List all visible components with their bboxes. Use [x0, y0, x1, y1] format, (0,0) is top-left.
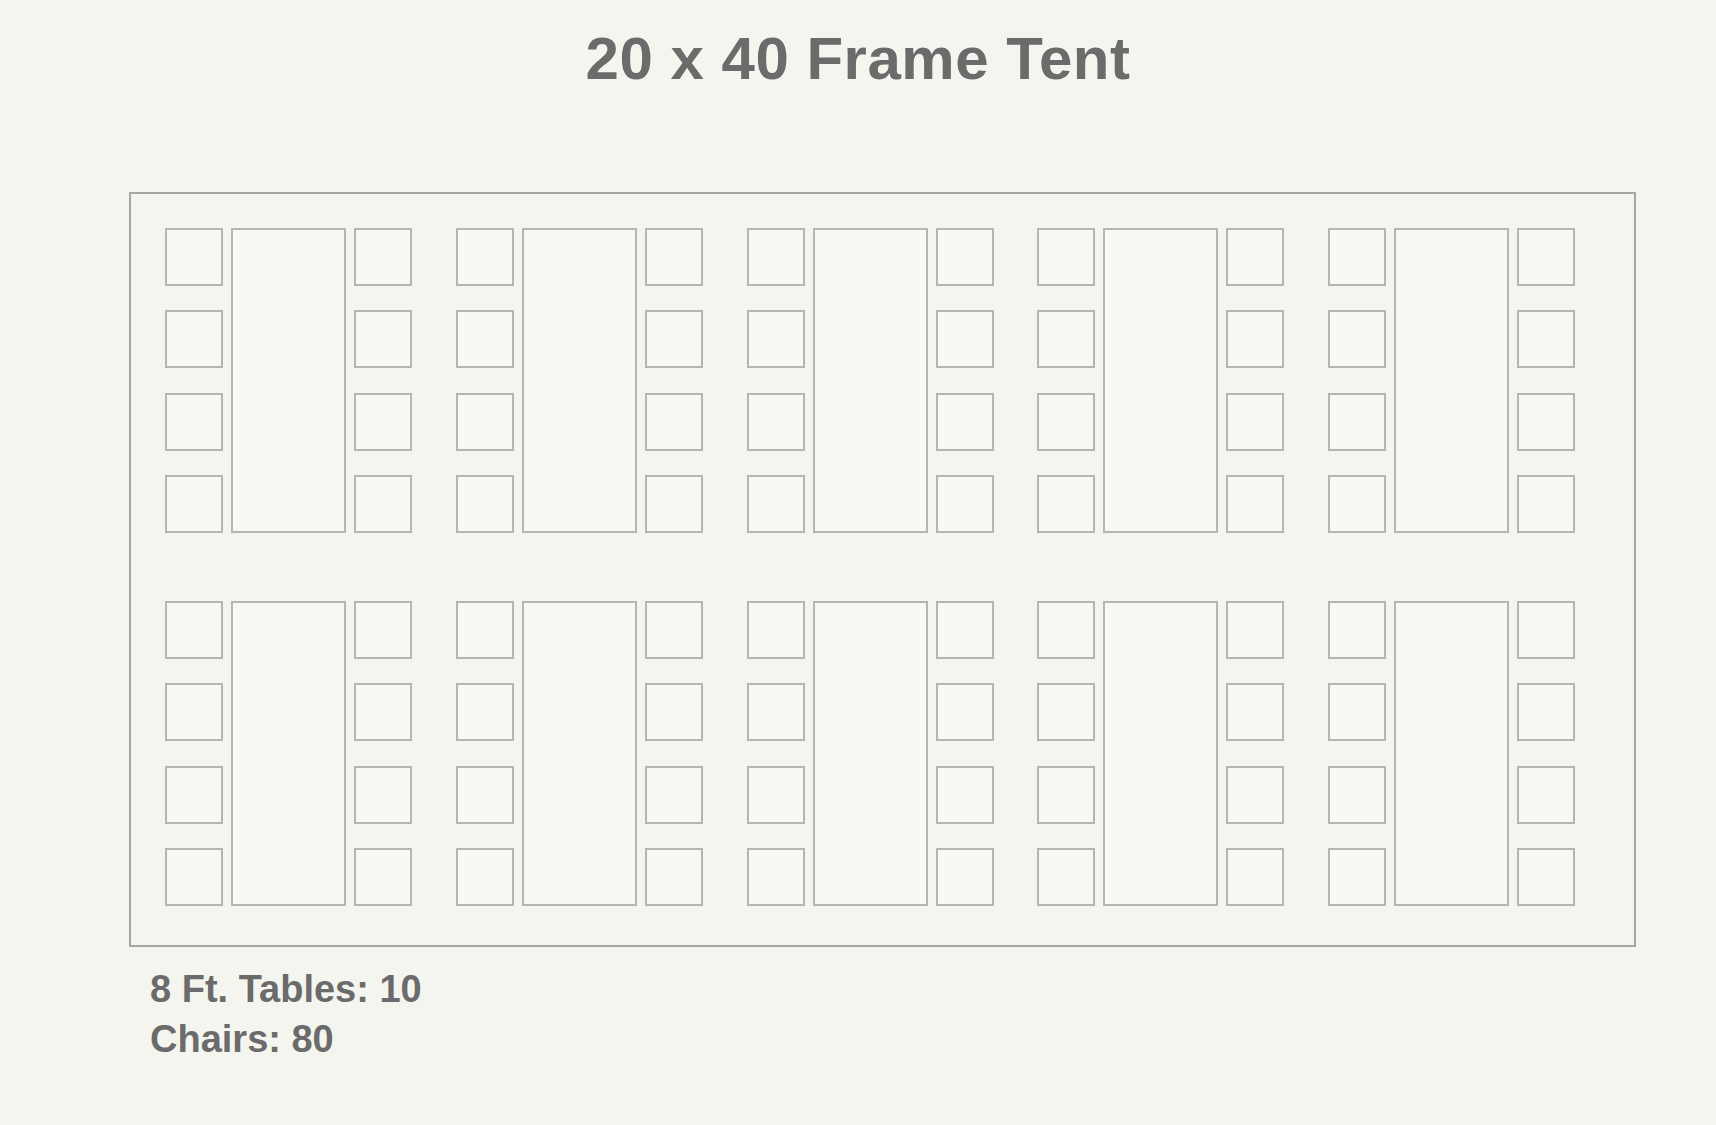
- chair: [747, 683, 805, 741]
- chair: [354, 683, 412, 741]
- chair: [354, 601, 412, 659]
- banquet-table: [231, 228, 346, 533]
- chair: [936, 683, 994, 741]
- chair: [354, 848, 412, 906]
- chair: [1328, 228, 1386, 286]
- chair: [1517, 475, 1575, 533]
- chair: [354, 228, 412, 286]
- chair: [354, 766, 412, 824]
- chair-column: [456, 228, 514, 533]
- banquet-table: [1394, 228, 1509, 533]
- chair: [645, 766, 703, 824]
- chair: [645, 393, 703, 451]
- chair: [1226, 683, 1284, 741]
- chair: [1226, 310, 1284, 368]
- chair: [1037, 475, 1095, 533]
- chair: [936, 601, 994, 659]
- chair: [1037, 848, 1095, 906]
- chair: [645, 228, 703, 286]
- chair: [165, 848, 223, 906]
- table-row-2: [165, 601, 1575, 906]
- table-group: [1328, 228, 1575, 533]
- chair-column: [747, 601, 805, 906]
- chair-column: [747, 228, 805, 533]
- chair: [165, 393, 223, 451]
- chair-column: [165, 601, 223, 906]
- chair: [1226, 848, 1284, 906]
- chair-column: [165, 228, 223, 533]
- chair-column: [354, 228, 412, 533]
- chair: [1517, 601, 1575, 659]
- chair: [1517, 683, 1575, 741]
- chair-column: [936, 601, 994, 906]
- chair: [936, 475, 994, 533]
- banquet-table: [1394, 601, 1509, 906]
- chair: [747, 393, 805, 451]
- chair: [354, 393, 412, 451]
- chair-column: [1328, 601, 1386, 906]
- tent-layout-page: 20 x 40 Frame Tent 8 Ft. Tables: 10 Chai…: [0, 0, 1716, 1125]
- chair-column: [645, 601, 703, 906]
- chair-column: [1226, 228, 1284, 533]
- chair-column: [456, 601, 514, 906]
- chair: [354, 475, 412, 533]
- chair: [1517, 310, 1575, 368]
- table-group: [1037, 601, 1284, 906]
- chair: [1328, 475, 1386, 533]
- tables-count-label: 8 Ft. Tables: 10: [150, 964, 422, 1014]
- chair-column: [1226, 601, 1284, 906]
- page-title: 20 x 40 Frame Tent: [0, 24, 1716, 93]
- chair: [1328, 310, 1386, 368]
- table-group: [747, 228, 994, 533]
- chair: [936, 228, 994, 286]
- legend: 8 Ft. Tables: 10 Chairs: 80: [150, 964, 422, 1064]
- banquet-table: [231, 601, 346, 906]
- table-group: [456, 228, 703, 533]
- banquet-table: [813, 601, 928, 906]
- chair: [1037, 683, 1095, 741]
- chair: [456, 683, 514, 741]
- table-group: [456, 601, 703, 906]
- chair: [747, 228, 805, 286]
- chair: [1037, 228, 1095, 286]
- chair: [747, 601, 805, 659]
- chair: [645, 475, 703, 533]
- chair: [1517, 228, 1575, 286]
- chair: [1328, 848, 1386, 906]
- chair: [645, 848, 703, 906]
- chair: [645, 683, 703, 741]
- chair: [1328, 601, 1386, 659]
- banquet-table: [1103, 601, 1218, 906]
- chair: [165, 475, 223, 533]
- chair: [1037, 601, 1095, 659]
- chair: [1226, 475, 1284, 533]
- chair: [456, 393, 514, 451]
- chair-column: [1517, 228, 1575, 533]
- chair: [1226, 228, 1284, 286]
- chair: [1517, 393, 1575, 451]
- chair: [936, 848, 994, 906]
- chair: [747, 848, 805, 906]
- chair: [1037, 393, 1095, 451]
- chair: [456, 601, 514, 659]
- chair: [747, 766, 805, 824]
- chair-column: [1328, 228, 1386, 533]
- table-group: [1328, 601, 1575, 906]
- chair: [747, 310, 805, 368]
- chair: [1517, 848, 1575, 906]
- chair: [645, 310, 703, 368]
- table-group: [165, 228, 412, 533]
- chair: [645, 601, 703, 659]
- chair: [165, 310, 223, 368]
- chair-column: [1037, 228, 1095, 533]
- chair-column: [1037, 601, 1095, 906]
- chair: [456, 848, 514, 906]
- chair: [1226, 766, 1284, 824]
- chair: [165, 766, 223, 824]
- table-group: [1037, 228, 1284, 533]
- chair-column: [1517, 601, 1575, 906]
- banquet-table: [1103, 228, 1218, 533]
- banquet-table: [522, 228, 637, 533]
- tent-outline: [129, 192, 1636, 947]
- table-row-1: [165, 228, 1575, 533]
- table-group: [165, 601, 412, 906]
- banquet-table: [813, 228, 928, 533]
- chair-column: [645, 228, 703, 533]
- chair: [1328, 683, 1386, 741]
- chair: [747, 475, 805, 533]
- chair: [1037, 766, 1095, 824]
- chair: [165, 683, 223, 741]
- chair: [456, 310, 514, 368]
- chair-column: [354, 601, 412, 906]
- chair: [1328, 766, 1386, 824]
- chair-column: [936, 228, 994, 533]
- table-group: [747, 601, 994, 906]
- chair: [456, 766, 514, 824]
- chair: [1226, 601, 1284, 659]
- banquet-table: [522, 601, 637, 906]
- chair: [456, 475, 514, 533]
- chair: [936, 766, 994, 824]
- chair: [1328, 393, 1386, 451]
- chairs-count-label: Chairs: 80: [150, 1014, 422, 1064]
- chair: [456, 228, 514, 286]
- chair: [165, 601, 223, 659]
- chair: [354, 310, 412, 368]
- chair: [936, 310, 994, 368]
- chair: [1517, 766, 1575, 824]
- chair: [936, 393, 994, 451]
- chair: [165, 228, 223, 286]
- chair: [1037, 310, 1095, 368]
- chair: [1226, 393, 1284, 451]
